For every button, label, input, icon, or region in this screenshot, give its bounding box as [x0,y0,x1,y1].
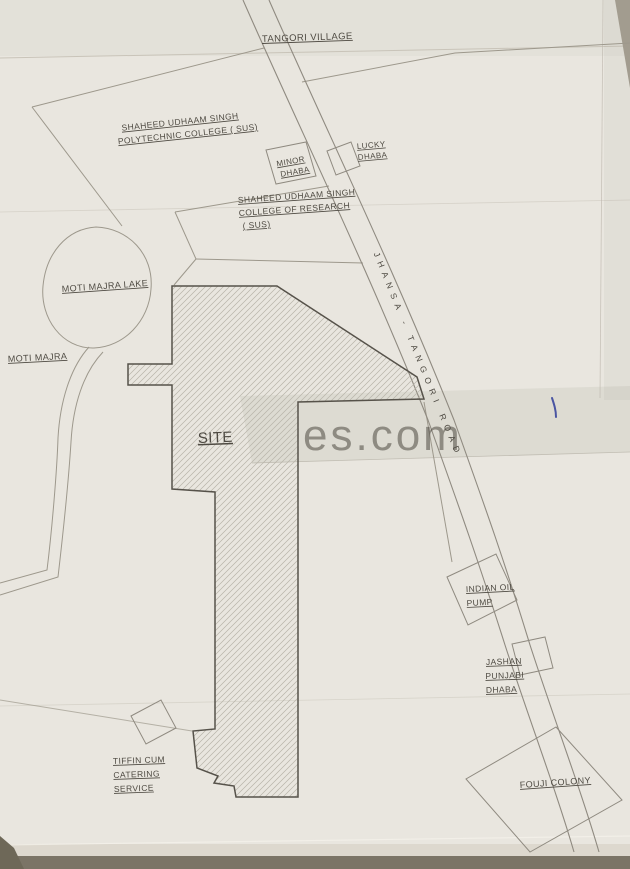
svg-text:JASHAN: JASHAN [486,656,522,667]
svg-text:PUMP: PUMP [466,597,493,608]
svg-text:( SUS): ( SUS) [242,219,271,231]
svg-text:PUNJABI: PUNJABI [485,670,524,681]
site-plan-map: JHANSA - TANGORI ROAD es.com TANGORI VIL… [0,0,630,869]
svg-text:DHABA: DHABA [486,684,518,695]
svg-text:CATERING: CATERING [113,768,160,780]
svg-text:TIFFIN CUM: TIFFIN CUM [113,754,165,766]
watermark-text: es.com [303,411,463,460]
svg-text:SERVICE: SERVICE [114,783,154,794]
site-plan-photo: JHANSA - TANGORI ROAD es.com TANGORI VIL… [0,0,630,869]
label-site: SITE [198,429,234,447]
